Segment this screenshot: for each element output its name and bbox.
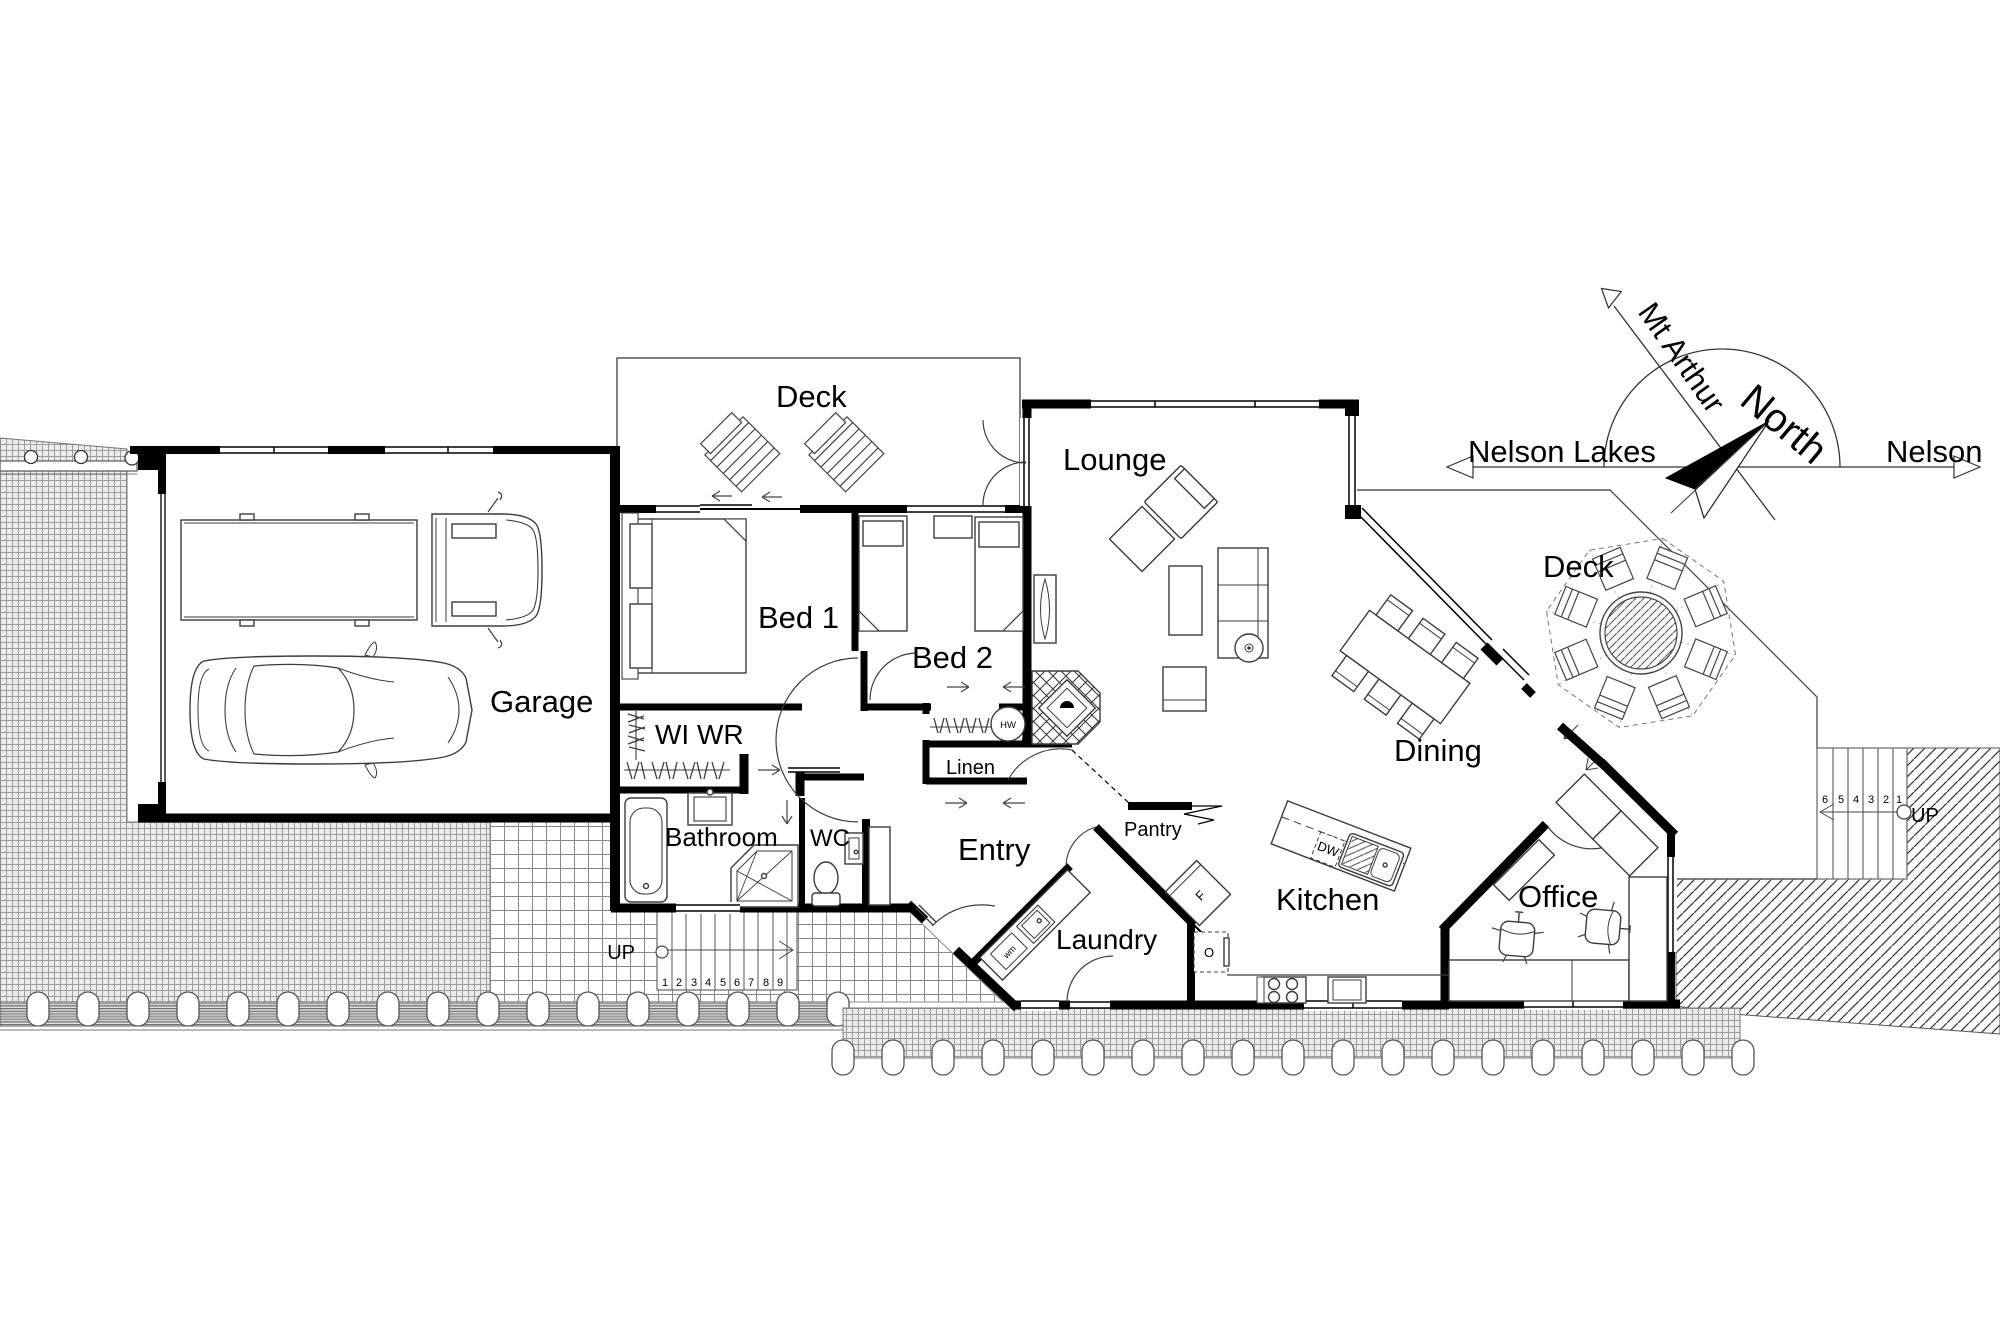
svg-text:Nelson: Nelson: [1886, 434, 1983, 469]
svg-text:Lounge: Lounge: [1063, 442, 1166, 477]
svg-text:Office: Office: [1518, 879, 1598, 914]
svg-text:Pantry: Pantry: [1124, 819, 1182, 841]
svg-text:Deck: Deck: [776, 379, 847, 414]
svg-text:Bed 1: Bed 1: [758, 600, 839, 635]
svg-text:2: 2: [1883, 794, 1889, 806]
svg-text:1: 1: [1896, 794, 1902, 806]
svg-text:5: 5: [720, 977, 726, 989]
svg-text:WC: WC: [810, 825, 850, 852]
svg-text:2: 2: [676, 977, 682, 989]
svg-text:4: 4: [1853, 794, 1859, 806]
svg-text:Garage: Garage: [490, 684, 593, 719]
svg-text:4: 4: [705, 977, 711, 989]
svg-text:Laundry: Laundry: [1056, 924, 1157, 955]
svg-text:7: 7: [748, 977, 754, 989]
svg-text:UP: UP: [607, 942, 635, 964]
svg-text:Nelson Lakes: Nelson Lakes: [1468, 434, 1656, 469]
svg-text:O: O: [1204, 945, 1214, 960]
svg-text:Dining: Dining: [1394, 733, 1482, 768]
svg-text:HW: HW: [1000, 720, 1016, 731]
svg-text:UP: UP: [1911, 805, 1939, 827]
svg-text:Linen: Linen: [946, 757, 995, 779]
svg-text:Entry: Entry: [958, 832, 1031, 867]
svg-text:6: 6: [734, 977, 740, 989]
svg-text:8: 8: [763, 977, 769, 989]
svg-text:6: 6: [1822, 794, 1828, 806]
svg-text:Bed 2: Bed 2: [912, 640, 993, 675]
svg-text:3: 3: [691, 977, 697, 989]
svg-text:1: 1: [662, 977, 668, 989]
svg-text:3: 3: [1868, 794, 1874, 806]
svg-text:Kitchen: Kitchen: [1276, 882, 1379, 917]
svg-text:Deck: Deck: [1543, 549, 1614, 584]
svg-text:WI WR: WI WR: [655, 719, 744, 750]
svg-text:9: 9: [777, 977, 783, 989]
svg-text:Bathroom: Bathroom: [665, 822, 778, 852]
svg-text:5: 5: [1838, 794, 1844, 806]
